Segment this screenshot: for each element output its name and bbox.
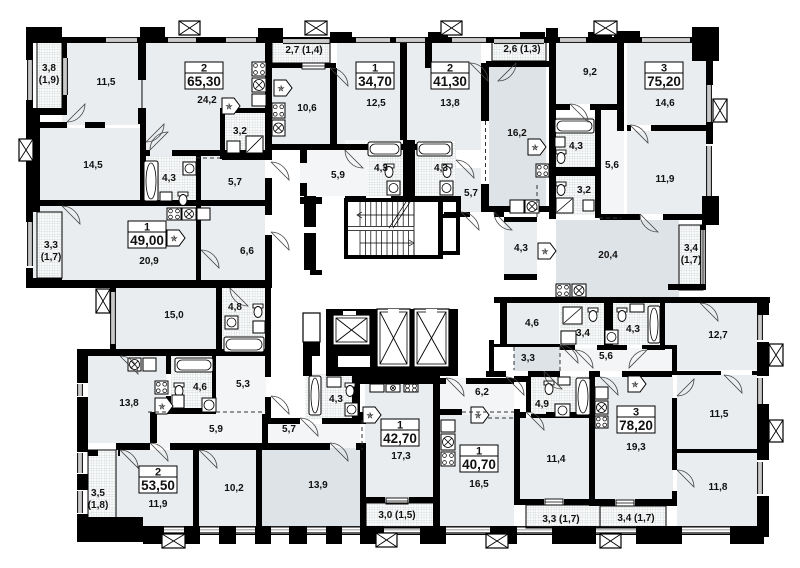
svg-text:11,9: 11,9 — [656, 174, 675, 185]
svg-text:5,6: 5,6 — [599, 351, 613, 362]
svg-text:1: 1 — [372, 63, 378, 75]
svg-text:✯: ✯ — [366, 411, 374, 421]
svg-text:40,70: 40,70 — [462, 457, 496, 472]
svg-text:3,3 (1,7): 3,3 (1,7) — [542, 514, 579, 525]
svg-text:12,7: 12,7 — [708, 330, 728, 341]
svg-text:42,70: 42,70 — [383, 431, 417, 446]
svg-text:4,3: 4,3 — [329, 394, 343, 405]
svg-text:41,30: 41,30 — [433, 74, 467, 89]
svg-text:4,9: 4,9 — [535, 399, 549, 410]
svg-text:6,2: 6,2 — [475, 387, 489, 398]
svg-text:✯: ✯ — [541, 247, 549, 257]
svg-text:✯: ✯ — [170, 234, 178, 244]
svg-text:10,6: 10,6 — [297, 103, 317, 114]
svg-text:5,7: 5,7 — [464, 188, 478, 199]
svg-text:13,9: 13,9 — [308, 480, 328, 491]
svg-text:20,4: 20,4 — [598, 250, 618, 261]
svg-text:16,2: 16,2 — [507, 128, 527, 139]
svg-text:(1,7): (1,7) — [41, 252, 62, 263]
svg-text:14,6: 14,6 — [655, 98, 675, 109]
svg-text:75,20: 75,20 — [647, 74, 681, 89]
svg-text:3,2: 3,2 — [233, 126, 247, 137]
svg-text:53,50: 53,50 — [141, 478, 175, 493]
svg-text:4,3: 4,3 — [374, 163, 388, 174]
svg-text:9,2: 9,2 — [583, 67, 597, 78]
svg-text:3: 3 — [633, 407, 639, 419]
svg-text:1: 1 — [476, 446, 482, 458]
svg-text:3,4: 3,4 — [576, 328, 590, 339]
svg-text:13,8: 13,8 — [119, 398, 139, 409]
svg-text:14,5: 14,5 — [83, 160, 103, 171]
svg-text:✯: ✯ — [631, 380, 639, 390]
svg-text:11,8: 11,8 — [709, 482, 728, 493]
svg-text:49,00: 49,00 — [130, 233, 164, 248]
svg-text:6,6: 6,6 — [240, 246, 254, 257]
svg-text:2: 2 — [447, 63, 453, 75]
svg-text:3,3: 3,3 — [521, 353, 535, 364]
svg-text:4,8: 4,8 — [228, 302, 242, 313]
svg-text:4,3: 4,3 — [434, 163, 448, 174]
svg-text:78,20: 78,20 — [619, 418, 653, 433]
svg-text:16,5: 16,5 — [469, 479, 489, 490]
svg-text:24,2: 24,2 — [197, 95, 217, 106]
svg-text:✯: ✯ — [225, 102, 233, 112]
svg-text:1: 1 — [397, 420, 403, 432]
svg-text:2: 2 — [201, 63, 207, 75]
svg-text:5,9: 5,9 — [331, 170, 345, 181]
svg-text:11,9: 11,9 — [149, 499, 168, 510]
svg-text:11,5: 11,5 — [710, 409, 729, 420]
svg-text:4,3: 4,3 — [569, 141, 583, 152]
svg-text:4,6: 4,6 — [193, 382, 207, 393]
svg-text:3,4: 3,4 — [684, 243, 698, 254]
svg-text:1: 1 — [144, 222, 150, 234]
svg-text:2: 2 — [155, 467, 161, 479]
svg-text:11,4: 11,4 — [547, 454, 566, 465]
svg-text:3: 3 — [661, 63, 667, 75]
svg-text:3,8: 3,8 — [42, 63, 56, 74]
svg-text:5,7: 5,7 — [228, 177, 242, 188]
svg-text:13,8: 13,8 — [440, 98, 460, 109]
svg-text:5,7: 5,7 — [282, 424, 296, 435]
svg-text:12,5: 12,5 — [366, 98, 386, 109]
svg-text:2,6 (1,3): 2,6 (1,3) — [503, 44, 540, 55]
svg-text:3,0 (1,5): 3,0 (1,5) — [378, 510, 415, 521]
svg-text:10,2: 10,2 — [224, 483, 244, 494]
svg-text:3,5: 3,5 — [91, 488, 105, 499]
svg-text:4,3: 4,3 — [162, 173, 176, 184]
svg-text:3,4 (1,7): 3,4 (1,7) — [617, 513, 654, 524]
svg-text:11,5: 11,5 — [97, 77, 116, 88]
svg-text:(1,9): (1,9) — [39, 75, 60, 86]
svg-text:✯: ✯ — [531, 143, 539, 153]
svg-text:34,70: 34,70 — [358, 74, 392, 89]
svg-text:(1,8): (1,8) — [88, 500, 109, 511]
svg-text:4,6: 4,6 — [525, 318, 539, 329]
svg-text:65,30: 65,30 — [187, 74, 221, 89]
svg-text:✯: ✯ — [277, 84, 285, 94]
svg-text:3,2: 3,2 — [577, 185, 591, 196]
svg-text:2,7 (1,4): 2,7 (1,4) — [285, 45, 322, 56]
svg-text:20,9: 20,9 — [139, 256, 159, 267]
svg-text:5,3: 5,3 — [236, 379, 250, 390]
svg-text:5,6: 5,6 — [605, 160, 619, 171]
svg-text:19,3: 19,3 — [626, 442, 646, 453]
svg-text:17,3: 17,3 — [391, 451, 411, 462]
svg-text:15,0: 15,0 — [164, 310, 184, 321]
svg-text:(1,7): (1,7) — [681, 255, 702, 266]
svg-text:4,3: 4,3 — [626, 324, 640, 335]
svg-text:4,3: 4,3 — [514, 243, 528, 254]
svg-text:3,3: 3,3 — [44, 240, 58, 251]
svg-text:5,9: 5,9 — [209, 424, 223, 435]
svg-text:✯: ✯ — [158, 402, 166, 412]
